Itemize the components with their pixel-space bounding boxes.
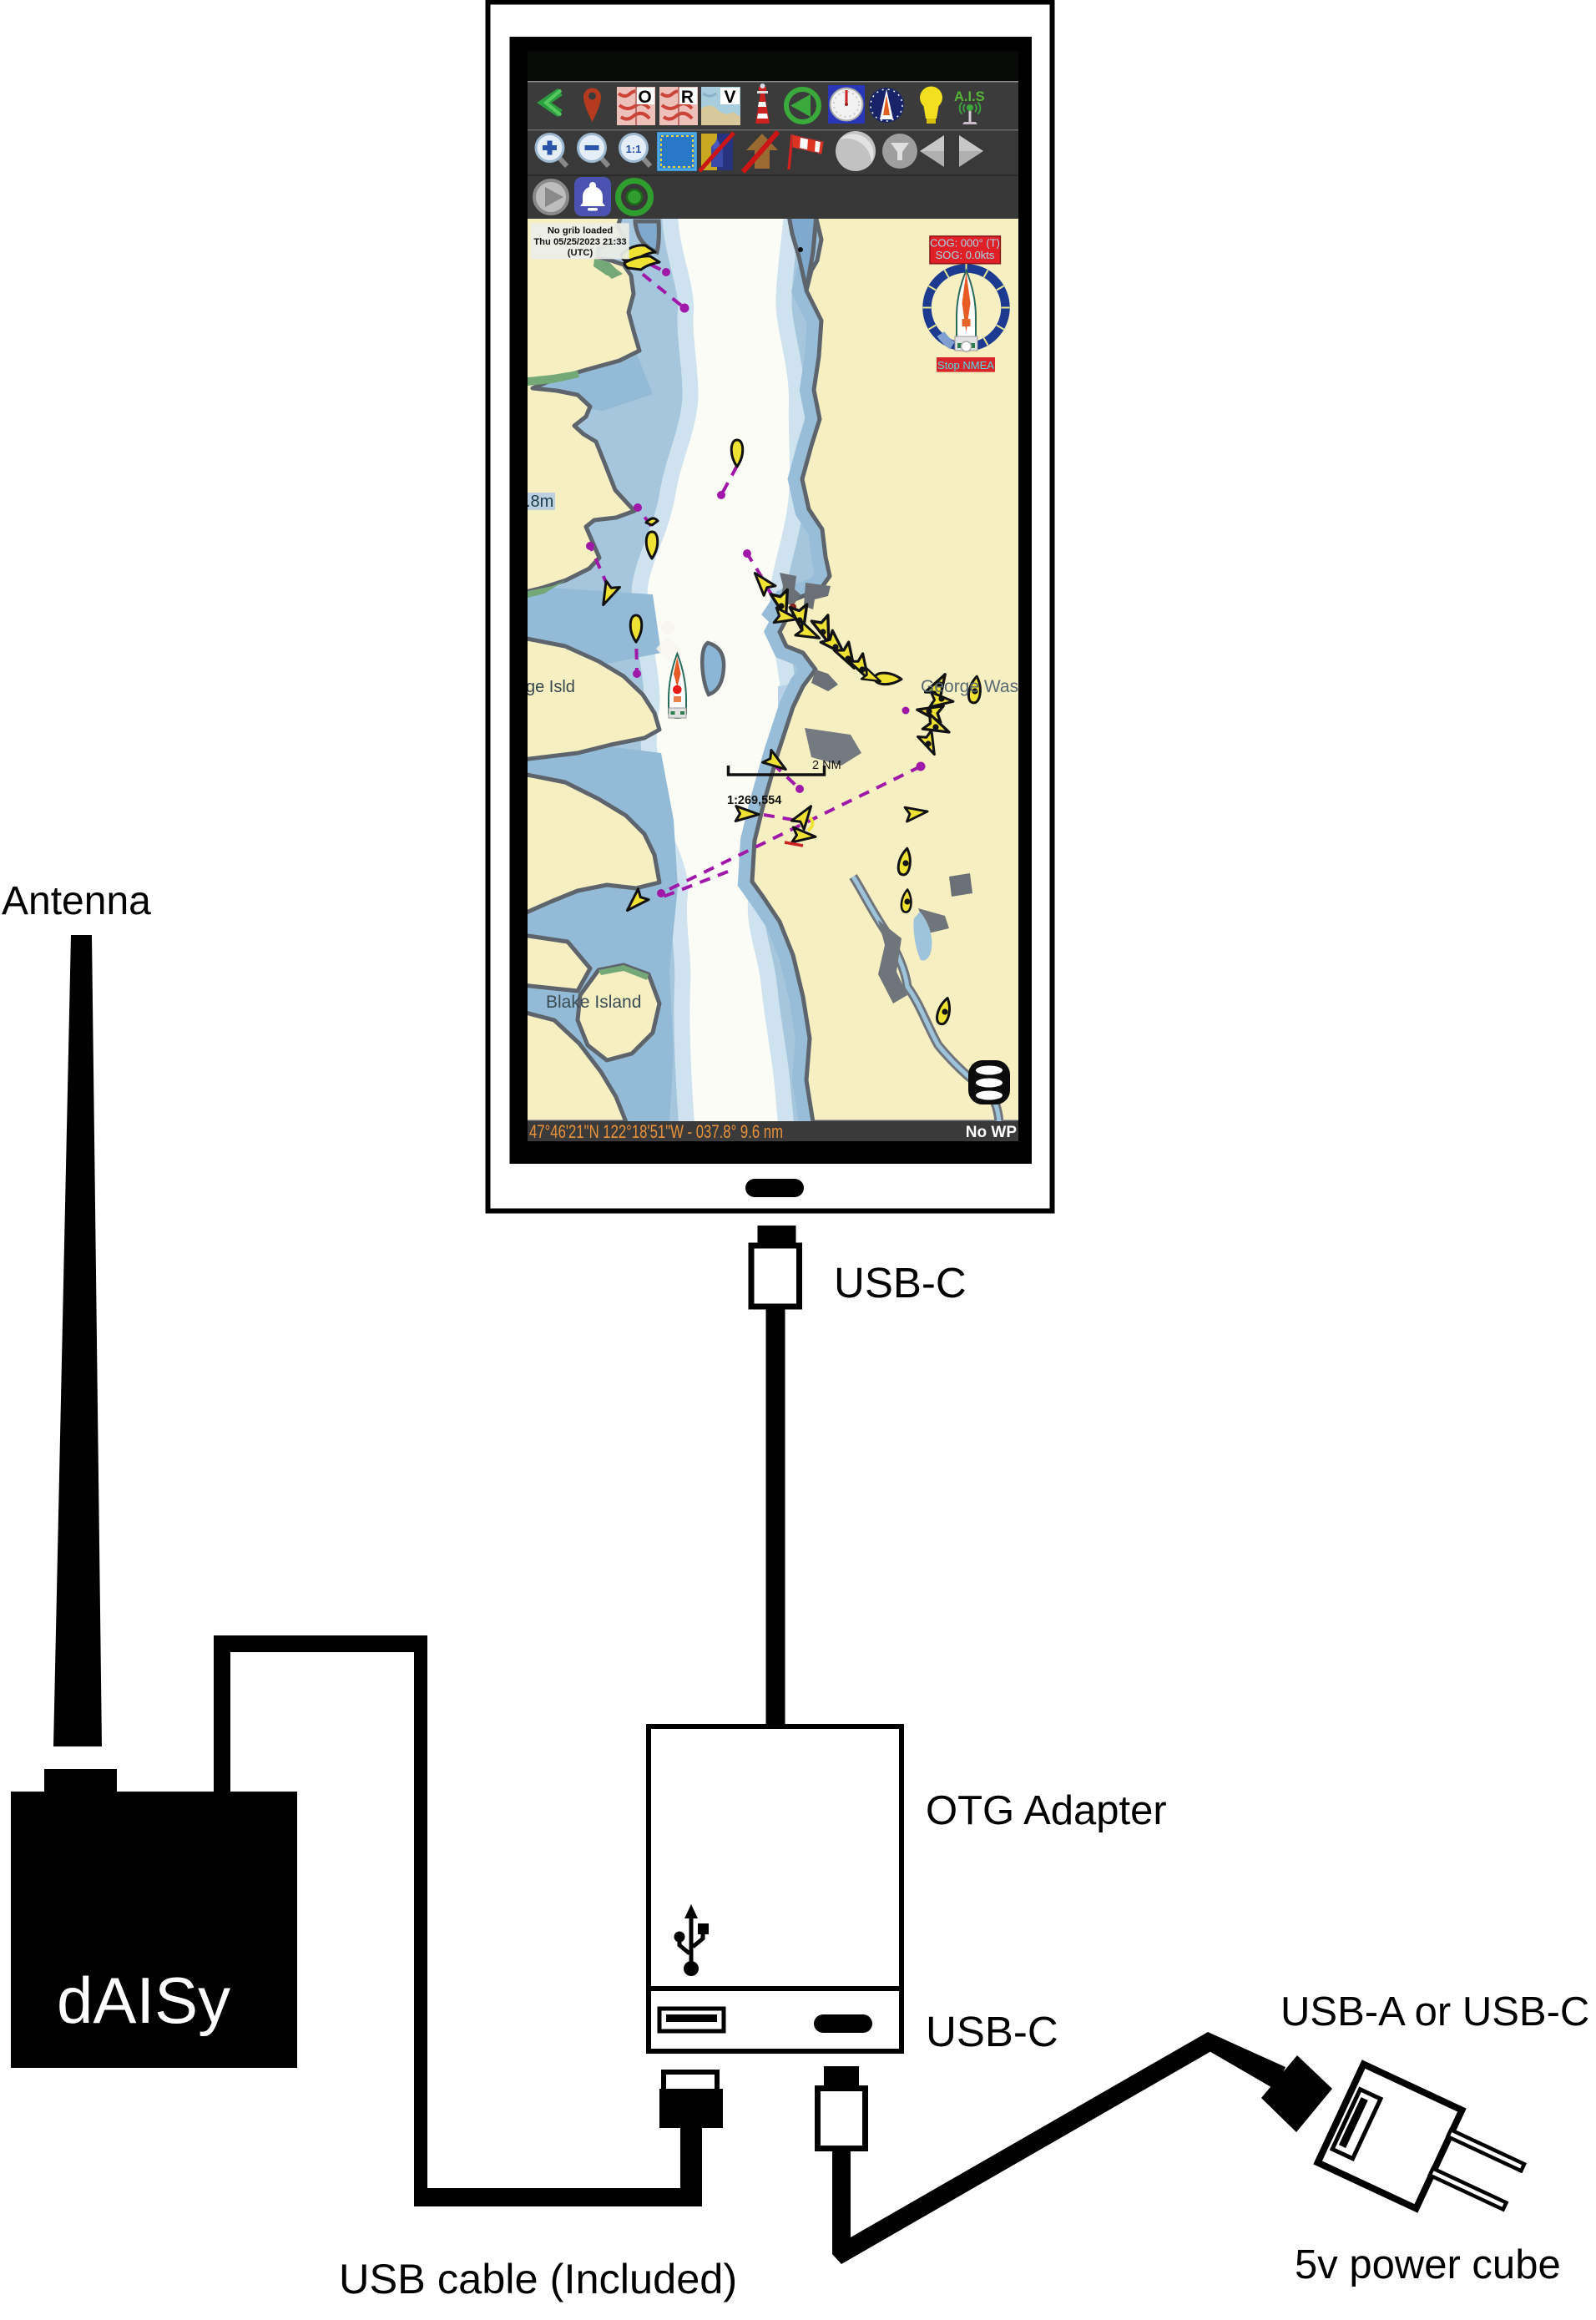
svg-text:47°46'21"N 122°18'51"W - 037.8: 47°46'21"N 122°18'51"W - 037.8° 9.6 nm [529,1121,783,1142]
svg-text:A.I.S: A.I.S [954,89,985,104]
svg-text:(UTC): (UTC) [568,248,593,258]
svg-text:OTG Adapter: OTG Adapter [926,1788,1167,1833]
svg-text:O: O [638,88,651,107]
svg-text:USB-C: USB-C [834,1259,967,1307]
svg-text:COG: 000° (T): COG: 000° (T) [930,237,1000,250]
svg-text:SOG: 0.0kts: SOG: 0.0kts [936,249,995,261]
svg-text:1:1: 1:1 [626,143,642,155]
svg-text:Antenna: Antenna [2,879,151,923]
svg-text:ge Isld: ge Isld [526,678,575,696]
svg-text:USB-C: USB-C [926,2008,1058,2055]
svg-text:Thu 05/25/2023 21:33: Thu 05/25/2023 21:33 [533,237,626,247]
svg-text:R: R [681,88,694,107]
svg-text:.8m: .8m [526,493,553,511]
svg-text:1:269,554: 1:269,554 [727,794,781,807]
svg-text:George Was: George Was [921,677,1018,696]
svg-text:dAISy: dAISy [57,1964,230,2037]
svg-text:USB cable (Included): USB cable (Included) [339,2255,737,2302]
svg-text:No WP: No WP [966,1124,1018,1141]
svg-text:V: V [724,88,735,107]
svg-text:No grib loaded: No grib loaded [548,226,613,236]
svg-text:Stop NMEA: Stop NMEA [937,359,994,372]
svg-text:5v power cube: 5v power cube [1295,2242,1561,2287]
svg-text:Blake Island: Blake Island [546,993,641,1012]
svg-text:USB-A or USB-C: USB-A or USB-C [1280,1989,1589,2034]
svg-text:2 NM: 2 NM [812,759,841,772]
